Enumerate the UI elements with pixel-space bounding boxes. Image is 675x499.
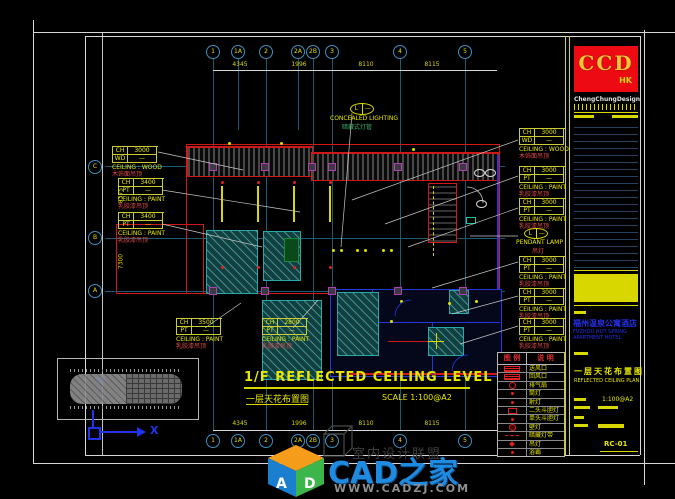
titleblock-micro-text-bar [574, 352, 588, 355]
legend-label: 射灯 [527, 399, 564, 406]
tag-key: CH [520, 257, 535, 265]
tag-key: CH [263, 319, 278, 327]
tag-value: — [535, 265, 564, 273]
concealed-lighting-label-cn: 暗藏式灯管 [342, 122, 372, 131]
tag-value: 3000 [535, 167, 564, 175]
return-air-grille-icon [504, 374, 520, 380]
tag-material-cn: 乳胶漆吊顶 [262, 343, 308, 350]
firm-logo-text: CCD [574, 46, 638, 80]
tag-key: PT [177, 327, 192, 335]
firm-name: ChengChungDesign [574, 96, 640, 103]
ucs-y-axis [92, 410, 94, 427]
titleblock-field-bar [574, 398, 586, 401]
tag-key: PT [119, 221, 134, 229]
ucs-x-axis [99, 431, 137, 433]
titleblock-left-line-outer [565, 36, 566, 455]
tag-value: — [535, 207, 564, 215]
titleblock-micro-text-bar [612, 115, 638, 118]
legend-label: 回风口 [527, 373, 564, 380]
titleblock-field-bar [574, 424, 588, 427]
tag-material-en: CEILING : PAINT [176, 336, 222, 343]
tag-value: 3500 [192, 319, 221, 327]
key-plan-grid-ticks-top [70, 369, 182, 372]
tag-key: CH [520, 319, 535, 327]
tag-value: 3000 [535, 257, 564, 265]
ceiling-tag-l5: CH2800PT— CEILING : PAINT 乳胶漆吊顶 [262, 318, 308, 350]
pendant-lamp-label-cn: 吊灯 [532, 246, 544, 255]
concealed-lighting-label-en: CONCEALED LIGHTING [330, 115, 398, 122]
tag-material-en: CEILING : PAINT [519, 184, 565, 191]
key-plan-grid-ticks-bottom [70, 406, 182, 409]
tag-key: WD [520, 137, 535, 145]
tag-key: CH [520, 167, 535, 175]
legend-label: 送风口 [527, 365, 564, 372]
callout-rev: — [363, 104, 374, 114]
cube-letter-d: D [304, 476, 316, 492]
tag-material-en: CEILING : PAINT [118, 196, 164, 203]
tag-key: CH [520, 289, 535, 297]
ceiling-tag-r5: CH3000PT— CEILING : PAINT 乳胶漆吊顶 [519, 288, 565, 320]
legend-row: 排气扇 [498, 382, 564, 390]
drawing-number: RC-01 [604, 440, 627, 448]
tag-material-en: CEILING : WOOD [112, 164, 158, 171]
ceiling-tag-r1: CH3000WD— CEILING : WOOD 木饰面吊顶 [519, 128, 565, 160]
leader-lines [158, 113, 518, 344]
tag-value: — [535, 137, 564, 145]
spotlight-icon [511, 401, 514, 404]
titleblock-micro-text-bar [574, 115, 594, 118]
tag-material-cn: 乳胶漆吊顶 [519, 281, 565, 288]
ucs-x-label: X [150, 424, 158, 437]
tag-key: PT [263, 327, 278, 335]
ucs-origin-square [88, 427, 101, 440]
drawing-title: 1/F REFLECTED CEILING LEVEL [244, 370, 493, 385]
legend-label: 壁灯 [527, 424, 564, 431]
firm-signature-strip [574, 104, 638, 110]
tag-key: CH [520, 129, 535, 137]
tag-value: — [535, 297, 564, 305]
tag-key: CH [520, 199, 535, 207]
legend-row: 单头斗胆灯 [498, 415, 564, 423]
double-head-light-icon [508, 408, 517, 414]
tag-key: PT [520, 297, 535, 305]
tag-material-cn: 乳胶漆吊顶 [519, 191, 565, 198]
legend-label: 排气扇 [527, 382, 564, 389]
ucs-x-arrowhead [137, 427, 146, 437]
titleblock-field-bar [574, 406, 590, 409]
tag-value: — [192, 327, 221, 335]
project-name-cn: 福州温泉公寓酒店 [573, 318, 641, 329]
tag-key: PT [520, 175, 535, 183]
tag-value: 2800 [278, 319, 307, 327]
legend-row: 吊灯 [498, 441, 564, 449]
drawing-title-cn-underline [246, 404, 308, 405]
tag-material-cn: 乳胶漆吊顶 [176, 343, 222, 350]
legend-row: 回风口 [498, 373, 564, 381]
tag-key: PT [520, 265, 535, 273]
legend-row: 浴霸 [498, 449, 564, 456]
pendant-lamp-callout-bubble: L— [524, 228, 548, 239]
legend-row: 壁灯 [498, 424, 564, 432]
tag-material-cn: 乳胶漆吊顶 [519, 343, 565, 350]
tag-key: CH [177, 319, 192, 327]
tag-material-en: CEILING : PAINT [519, 306, 565, 313]
downlight-icon [511, 392, 514, 395]
tag-key: PT [520, 207, 535, 215]
sheet-name-cn: 一层天花布置图 [574, 366, 644, 377]
tag-value: 3000 [535, 129, 564, 137]
legend-row: 射灯 [498, 399, 564, 407]
titleblock-stamp-block [574, 274, 638, 302]
tag-material-en: CEILING : PAINT [118, 230, 164, 237]
tag-key: WD [113, 155, 128, 163]
drawing-scale-label: SCALE 1:100@A2 [382, 393, 452, 402]
cube-letter-a: A [276, 476, 287, 492]
legend-label: 二头斗胆灯 [527, 407, 564, 414]
tag-value: 3400 [134, 213, 163, 221]
tag-key: CH [119, 179, 134, 187]
supply-air-grille-icon [504, 366, 520, 372]
tag-material-cn: 木饰面吊顶 [519, 153, 565, 160]
tag-material-cn: 木饰面吊顶 [112, 171, 158, 178]
titleblock-micro-text-bar [574, 311, 586, 314]
door-swing-arc [395, 300, 411, 316]
legend-header-symbol: 图 例 [498, 353, 527, 364]
ceiling-tag-r4: CH3000PT— CEILING : PAINT 乳胶漆吊顶 [519, 256, 565, 288]
ceiling-tag-l1: CH3000WD— CEILING : WOOD 木饰面吊顶 [112, 146, 158, 178]
single-head-light-icon [511, 418, 514, 421]
titleblock-field-bar [598, 406, 618, 409]
legend-label: 单头斗胆灯 [527, 415, 564, 422]
tag-value: — [134, 221, 163, 229]
firm-logo-box: CCD HK [574, 46, 638, 92]
tag-value: — [278, 327, 307, 335]
brand-logo-cube-icon: A D [266, 444, 326, 498]
callout-tag: L [525, 229, 537, 238]
titleblock-left-line-inner [569, 36, 570, 455]
cad-screenshot-canvas: 4345 1996 8110 8115 4345 1996 8110 8115 … [0, 0, 675, 499]
drawing-number-underline [600, 451, 638, 452]
ceiling-tag-r6: CH3000PT— CEILING : PAINT 乳胶漆吊顶 [519, 318, 565, 350]
legend-row: 二头斗胆灯 [498, 407, 564, 415]
tag-key: PT [119, 187, 134, 195]
legend-row: 筒灯 [498, 390, 564, 398]
revision-table [574, 122, 638, 268]
tag-value: 3000 [128, 147, 157, 155]
tag-material-cn: 乳胶漆吊顶 [118, 237, 164, 244]
tag-key: CH [113, 147, 128, 155]
project-name-en: FUZHOU HOT SPRING APARTMENT HOTEL [573, 329, 639, 341]
tag-material-en: CEILING : PAINT [262, 336, 308, 343]
pendant-lamp-icon [509, 441, 515, 447]
legend-row: 暗藏灯带 [498, 432, 564, 440]
exhaust-fan-icon [509, 382, 516, 389]
tag-key: PT [520, 327, 535, 335]
ceiling-tag-r3: CH3000PT— CEILING : PAINT 乳胶漆吊顶 [519, 198, 565, 230]
tag-material-en: CEILING : WOOD [519, 146, 565, 153]
tag-material-en: CEILING : PAINT [519, 274, 565, 281]
cove-light-icon [505, 435, 519, 436]
callout-tag: L [351, 104, 363, 114]
wall-lamp-icon [509, 424, 516, 431]
drawing-title-underline [244, 387, 470, 389]
legend-header-desc: 说 明 [527, 353, 564, 364]
legend-label: 吊灯 [527, 441, 564, 448]
titleblock-field-bar [598, 424, 624, 428]
legend-header: 图 例 说 明 [498, 353, 564, 365]
tag-value: — [134, 187, 163, 195]
ceiling-tag-l4: CH3500PT— CEILING : PAINT 乳胶漆吊顶 [176, 318, 222, 350]
ceiling-tag-r2: CH3000PT— CEILING : PAINT 乳胶漆吊顶 [519, 166, 565, 198]
pendant-lamp-label-en: PENDANT LAMP [516, 239, 563, 246]
bath-heater-icon [511, 451, 514, 454]
tag-value: 3000 [535, 319, 564, 327]
sheet-scale-value: 1:100@A2 [602, 396, 633, 403]
callout-rev: — [537, 229, 548, 238]
ceiling-tag-l3: CH3400PT— CEILING : PAINT 乳胶漆吊顶 [118, 212, 164, 244]
titleblock-divider [574, 112, 638, 113]
legend-table: 图 例 说 明 送风口 回风口 排气扇 筒灯 射灯 二头斗胆灯 单头斗胆灯 壁灯… [497, 352, 565, 457]
legend-label: 筒灯 [527, 390, 564, 397]
legend-label: 浴霸 [527, 449, 564, 456]
tag-material-en: CEILING : PAINT [519, 336, 565, 343]
tag-value: 3400 [134, 179, 163, 187]
tag-value: — [535, 175, 564, 183]
titleblock-divider [574, 305, 638, 306]
titleblock-field-bar [574, 416, 584, 419]
tag-material-cn: 乳胶漆吊顶 [118, 203, 164, 210]
key-plan-highlight-zone [126, 374, 182, 404]
tag-value: 3000 [535, 199, 564, 207]
tag-value: 3000 [535, 289, 564, 297]
tag-key: CH [119, 213, 134, 221]
legend-row: 送风口 [498, 365, 564, 373]
legend-label: 暗藏灯带 [527, 432, 564, 439]
door-swing-arc [452, 355, 468, 371]
titleblock-divider [574, 270, 638, 271]
tag-material-en: CEILING : PAINT [519, 216, 565, 223]
ceiling-tag-l2: CH3400PT— CEILING : PAINT 乳胶漆吊顶 [118, 178, 164, 210]
tag-value: — [128, 155, 157, 163]
brand-watermark-url: WWW.CADZJ.COM [334, 482, 470, 495]
tag-value: — [535, 327, 564, 335]
concealed-lighting-callout-bubble: L— [350, 103, 374, 115]
sheet-name-en: REFLECTED CEILING PLAN [574, 378, 639, 384]
